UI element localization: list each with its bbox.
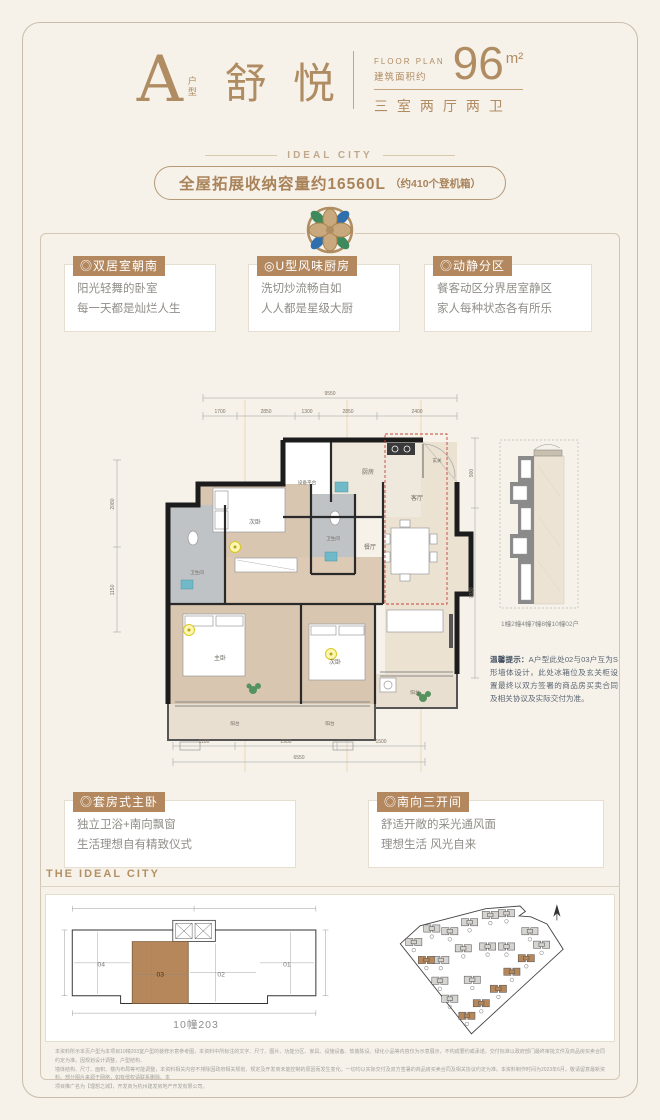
room-label-kitchen: 厨房 xyxy=(362,468,374,476)
room-label-living: 客厅 xyxy=(411,494,423,502)
type-label: 户型 xyxy=(186,76,199,112)
dim-top-5: 2400 xyxy=(411,409,422,415)
disclaimer: 本资料所示本页户型为本项目10幢203室户型的装修示意参考图，本资料中所标注的文… xyxy=(55,1048,605,1092)
floor-plan-en: FLOOR PLAN xyxy=(374,57,445,66)
logo-line-right xyxy=(383,155,455,156)
type-block: A 户型 xyxy=(137,48,199,112)
storage-banner: 全屋拓展收纳容量约16560L （约410个登机箱） xyxy=(0,166,660,200)
feature-card-u-kitchen: ◎U型风味厨房 洗切炒流畅自如 人人都是星级大厨 xyxy=(248,264,400,332)
room-label-dining: 餐厅 xyxy=(364,543,376,551)
feature-line: 理想生活 风光自来 xyxy=(381,835,591,855)
floor-plan-drawing: 设备平台 厨房 玄关 客厅 餐厅 次卧 卫生间 卫生间 主卧 次卧 阳台 阳台 … xyxy=(85,342,485,782)
feature-badge: ◎南向三开间 xyxy=(377,792,469,812)
keyplan-unit-03: 03 xyxy=(156,971,164,978)
poster-page: A 户型 舒悦 FLOOR PLAN 建筑面积约 96 m² 三室两厅两卫 ID… xyxy=(0,0,660,1120)
room-label-bed-lower: 次卧 xyxy=(329,658,341,666)
dim-top-4: 2850 xyxy=(342,409,353,415)
area-value: 96 xyxy=(453,44,504,83)
keyplan-unit-02: 02 xyxy=(217,971,225,978)
room-label-bath-b: 卫生间 xyxy=(326,535,340,542)
feature-badge: ◎U型风味厨房 xyxy=(257,256,357,276)
type-letter: A xyxy=(137,48,183,112)
bottom-card: 04 03 02 01 10幢203 xyxy=(45,894,615,1042)
brand-logo: IDEAL CITY xyxy=(287,150,372,161)
header-right: FLOOR PLAN 建筑面积约 96 m² 三室两厅两卫 xyxy=(374,44,523,116)
room-label-entry: 玄关 xyxy=(432,457,442,464)
rooms-layout: 三室两厅两卫 xyxy=(374,89,523,116)
room-label-master: 主卧 xyxy=(214,654,226,662)
keyplan-caption: 10幢203 xyxy=(46,1017,346,1032)
logo-line-left xyxy=(205,155,277,156)
feature-line: 洗切炒流畅自如 xyxy=(261,279,387,299)
flower-medallion-icon xyxy=(304,204,356,256)
wall-detail-diagram xyxy=(494,436,586,614)
disclaimer-line: 项目推广名为【理想之城】，开发商为杭州建发房地产开发有限公司。 xyxy=(55,1083,605,1092)
feature-card-south-bays: ◎南向三开间 舒适开敞的采光通风面 理想生活 风光自来 xyxy=(368,800,604,868)
area-unit: m² xyxy=(506,50,524,67)
keyplan-block: 04 03 02 01 10幢203 xyxy=(46,895,346,1041)
header: A 户型 舒悦 FLOOR PLAN 建筑面积约 96 m² 三室两厅两卫 xyxy=(0,44,660,116)
dim-bottom-1: 1180 xyxy=(199,739,210,745)
feature-line: 餐客动区分界居室静区 xyxy=(437,279,579,299)
feature-card-zoning: ◎动静分区 餐客动区分界居室静区 家人每种状态各有所乐 xyxy=(424,264,592,332)
room-label-equip: 设备平台 xyxy=(298,479,317,486)
dim-top-2: 2850 xyxy=(260,409,271,415)
sitemap-drawing xyxy=(350,897,600,1041)
disclaimer-line: 本资料所示本页户型为本项目10幢203室户型的装修示意参考图，本资料中所标注的文… xyxy=(55,1048,605,1066)
storage-note: （约410个登机箱） xyxy=(390,176,481,191)
feature-card-south-bedrooms: ◎双居室朝南 阳光轻舞的卧室 每一天都是灿烂人生 xyxy=(64,264,216,332)
feature-line: 家人每种状态各有所乐 xyxy=(437,299,579,319)
dim-bottom-2: 2900 xyxy=(280,739,291,745)
dim-right-2: 7930 xyxy=(469,587,475,598)
dim-top-1: 1700 xyxy=(214,409,225,415)
feature-badge: ◎套房式主卧 xyxy=(73,792,165,812)
feature-badge: ◎双居室朝南 xyxy=(73,256,165,276)
room-label-balcony-c: 阳台 xyxy=(410,689,420,696)
tip-label: 温馨提示： xyxy=(490,655,529,664)
room-label-balcony-b: 阳台 xyxy=(325,720,335,727)
brand-text: THE IDEAL CITY xyxy=(46,868,160,880)
room-label-bed-upper: 次卧 xyxy=(249,518,261,526)
feature-line: 独立卫浴+南向飘窗 xyxy=(77,815,283,835)
dim-right-1: 900 xyxy=(469,469,475,478)
brand-rule xyxy=(40,886,620,887)
feature-badge: ◎动静分区 xyxy=(433,256,512,276)
storage-text: 全屋拓展收纳容量约16560L xyxy=(179,172,386,194)
logo-row: IDEAL CITY xyxy=(0,150,660,161)
dim-left-2: 1150 xyxy=(110,584,116,595)
dim-left-1: 2080 xyxy=(110,498,116,509)
tip-block: 温馨提示：A户型此处02与03户互为S形墙体设计，此处冰箱位及玄关柜设置最终以双… xyxy=(490,654,618,706)
dim-bottom-3: 1500 xyxy=(375,739,386,745)
wall-detail-caption: 1幢2幢4幢7幢8幢10幢02户 xyxy=(480,618,600,628)
floor-plan-labels: FLOOR PLAN 建筑面积约 xyxy=(374,57,445,83)
feature-line: 人人都是星级大厨 xyxy=(261,299,387,319)
dim-top-3: 1300 xyxy=(301,409,312,415)
type-name: 舒悦 xyxy=(225,50,361,111)
feature-line: 阳光轻舞的卧室 xyxy=(77,279,203,299)
dim-top-total: 9550 xyxy=(324,391,335,397)
feature-card-suite-master: ◎套房式主卧 独立卫浴+南向飘窗 生活理想自有精致仪式 xyxy=(64,800,296,868)
dim-bottom-total: 6550 xyxy=(293,755,304,761)
header-divider xyxy=(353,51,354,109)
room-label-bath-a: 卫生间 xyxy=(190,569,204,576)
room-label-balcony-a: 阳台 xyxy=(230,720,240,727)
keyplan-drawing: 04 03 02 01 xyxy=(54,901,338,1017)
keyplan-unit-01: 01 xyxy=(283,962,291,969)
feature-line: 舒适开敞的采光通风面 xyxy=(381,815,591,835)
keyplan-unit-04: 04 xyxy=(98,962,106,969)
disclaimer-line: 墙体结构、尺寸、面积、楼内布局等可能调整，本资料相关内容不排除因政府相关规划、规… xyxy=(55,1066,605,1084)
area-label: 建筑面积约 xyxy=(374,69,445,83)
feature-line: 每一天都是灿烂人生 xyxy=(77,299,203,319)
feature-line: 生活理想自有精致仪式 xyxy=(77,835,283,855)
north-arrow-icon xyxy=(553,904,560,920)
